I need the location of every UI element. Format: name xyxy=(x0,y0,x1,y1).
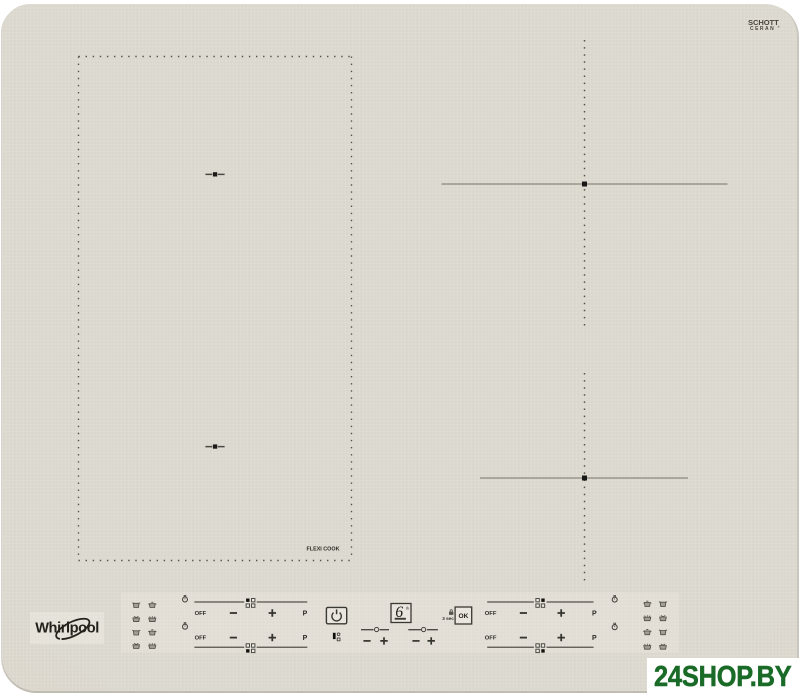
svg-text:OFF: OFF xyxy=(485,611,497,617)
svg-text:3 sec: 3 sec xyxy=(442,616,454,621)
svg-text:OFF: OFF xyxy=(195,611,207,617)
svg-text:OFF: OFF xyxy=(195,636,207,642)
svg-text:P: P xyxy=(592,610,597,617)
svg-text:P: P xyxy=(303,610,308,617)
svg-text:OK: OK xyxy=(458,613,468,620)
svg-text:OFF: OFF xyxy=(485,636,497,642)
svg-text:CERAN: CERAN xyxy=(750,26,775,32)
svg-text:th: th xyxy=(406,606,409,611)
svg-text:®: ® xyxy=(778,25,781,29)
svg-text:P: P xyxy=(592,635,597,642)
svg-text:FLEXI COOK: FLEXI COOK xyxy=(307,547,340,553)
svg-text:P: P xyxy=(303,635,308,642)
